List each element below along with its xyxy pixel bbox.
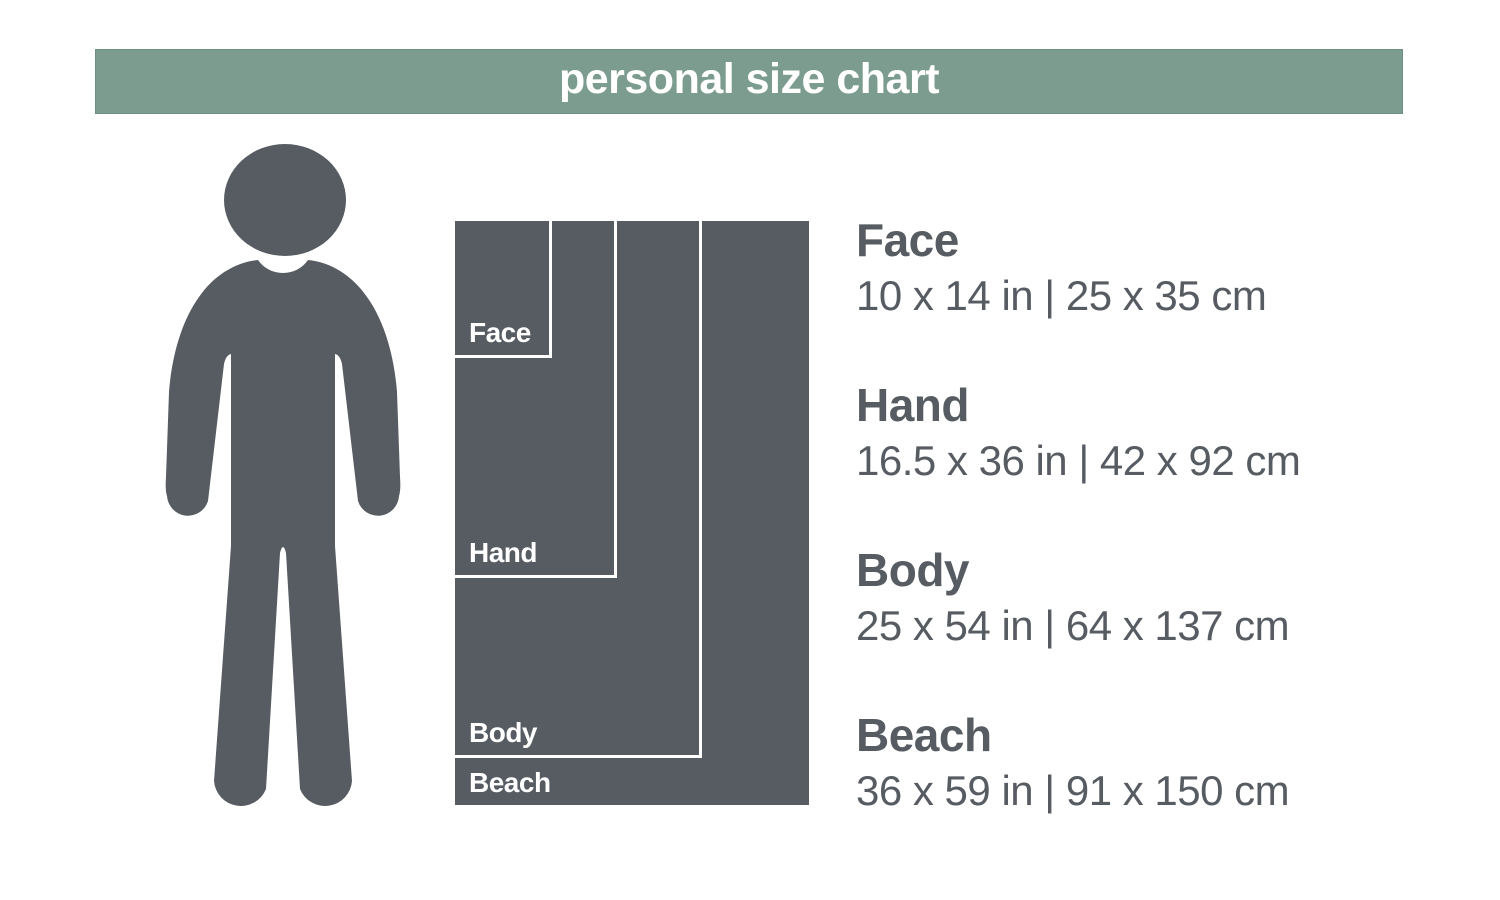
towel-rect-face-label: Face xyxy=(469,319,531,347)
towel-rect-hand-label: Hand xyxy=(469,539,537,567)
person-silhouette-icon xyxy=(140,120,425,835)
legend-entry-body: Body 25 x 54 in | 64 x 137 cm xyxy=(856,543,1289,654)
header-bar: personal size chart xyxy=(95,49,1403,114)
legend-entry-beach: Beach 36 x 59 in | 91 x 150 cm xyxy=(856,708,1289,819)
size-name: Face xyxy=(856,213,1266,268)
towel-rect-face: Face xyxy=(452,218,552,358)
size-chart-canvas: personal size chart Beach Body Hand Face… xyxy=(0,0,1500,900)
legend-entry-hand: Hand 16.5 x 36 in | 42 x 92 cm xyxy=(856,378,1300,489)
size-name: Body xyxy=(856,543,1289,598)
size-dimensions: 16.5 x 36 in | 42 x 92 cm xyxy=(856,433,1300,489)
person-body xyxy=(166,260,401,806)
size-name: Beach xyxy=(856,708,1289,763)
towel-rect-body-label: Body xyxy=(469,719,537,747)
towel-rect-beach-label: Beach xyxy=(469,769,551,797)
size-dimensions: 25 x 54 in | 64 x 137 cm xyxy=(856,598,1289,654)
size-name: Hand xyxy=(856,378,1300,433)
legend-entry-face: Face 10 x 14 in | 25 x 35 cm xyxy=(856,213,1266,324)
page-title: personal size chart xyxy=(559,58,939,105)
size-dimensions: 36 x 59 in | 91 x 150 cm xyxy=(856,763,1289,819)
size-dimensions: 10 x 14 in | 25 x 35 cm xyxy=(856,268,1266,324)
person-head xyxy=(224,144,346,256)
